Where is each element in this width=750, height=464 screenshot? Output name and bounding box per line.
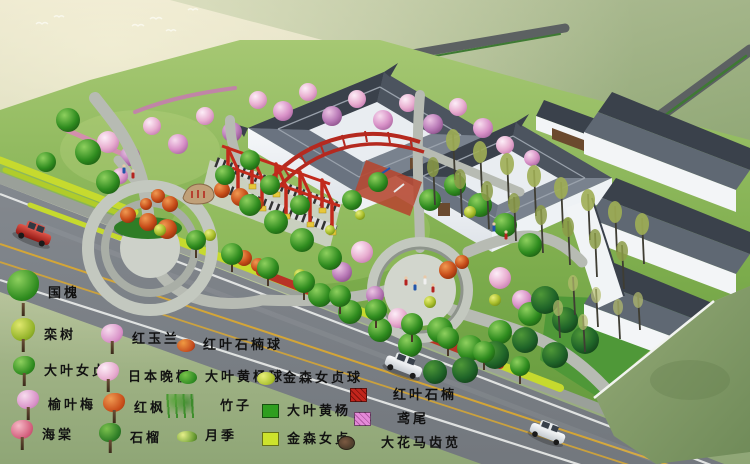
legend-label: 栾树 [44, 329, 76, 342]
shrub-ball-icon [179, 371, 197, 384]
tree-icon [10, 318, 36, 352]
tree-icon [102, 393, 126, 423]
legend-label: 海棠 [42, 429, 74, 442]
rose-shrub-icon [177, 431, 197, 442]
legend-item-dayenvzhen: 大叶女贞 [12, 356, 108, 386]
legend-label: 红玉兰 [132, 333, 180, 346]
legend-label: 金森女贞球 [283, 372, 363, 385]
legend-label: 红枫 [134, 402, 166, 415]
legend-label: 竹子 [220, 400, 252, 413]
color-swatch-icon [262, 432, 279, 446]
legend-item-shiliu: 石榴 [98, 423, 162, 453]
legend-item-yueji: 月季 [177, 430, 237, 443]
legend-label: 榆叶梅 [48, 399, 96, 412]
color-swatch-icon [262, 404, 279, 418]
legend-label: 石榴 [130, 432, 162, 445]
legend-label: 红叶石楠球 [203, 339, 283, 352]
legend-item-luanshu: 栾树 [10, 318, 76, 352]
legend-item-guohuai: 国槐 [6, 270, 80, 316]
shrub-ball-icon [177, 339, 195, 352]
color-swatch-icon [354, 412, 371, 426]
legend-item-yuanwei: 鸢尾 [354, 412, 429, 426]
legend-label: 红叶石楠 [393, 389, 457, 402]
tree-icon [10, 420, 34, 450]
legend-item-dahuamachixian: 大花马齿苋 [338, 436, 461, 450]
legend-item-haitang: 海棠 [10, 420, 74, 450]
legend-label: 月季 [205, 430, 237, 443]
legend-label: 大叶黄杨 [287, 405, 351, 418]
legend-item-yuyemei: 榆叶梅 [16, 390, 96, 420]
legend-item-hongfeng: 红枫 [102, 393, 166, 423]
groundcover-icon [338, 436, 355, 450]
legend-item-hongyulan: 红玉兰 [100, 324, 180, 354]
tree-icon [16, 390, 40, 420]
legend-item-hongyeshinanqiu: 红叶石楠球 [177, 339, 283, 352]
legend-label: 国槐 [48, 287, 80, 300]
tree-icon [100, 324, 124, 354]
bamboo-icon [166, 394, 194, 418]
legend-item-dayehuangyang: 大叶黄杨 [262, 404, 351, 418]
color-swatch-icon [350, 388, 367, 402]
shrub-ball-icon [257, 372, 275, 385]
legend-label: 鸢尾 [397, 413, 429, 426]
legend-item-jinsennvzhenqiu: 金森女贞球 [257, 372, 363, 385]
landscape-rendering: 国槐 栾树 大叶女贞 榆叶梅 海棠 红玉兰 日本晚樱 红枫 石榴 红叶石楠球 大… [0, 0, 750, 464]
legend-item-hongyeshinan: 红叶石楠 [350, 388, 457, 402]
tree-icon [96, 362, 120, 392]
legend-item-zhuzi: 竹子 [166, 394, 252, 418]
legend-label: 大花马齿苋 [381, 437, 461, 450]
legend-item-ribenwanying: 日本晚樱 [96, 362, 192, 392]
tree-icon [6, 270, 40, 316]
tree-icon [98, 423, 122, 453]
tree-icon [12, 356, 36, 386]
